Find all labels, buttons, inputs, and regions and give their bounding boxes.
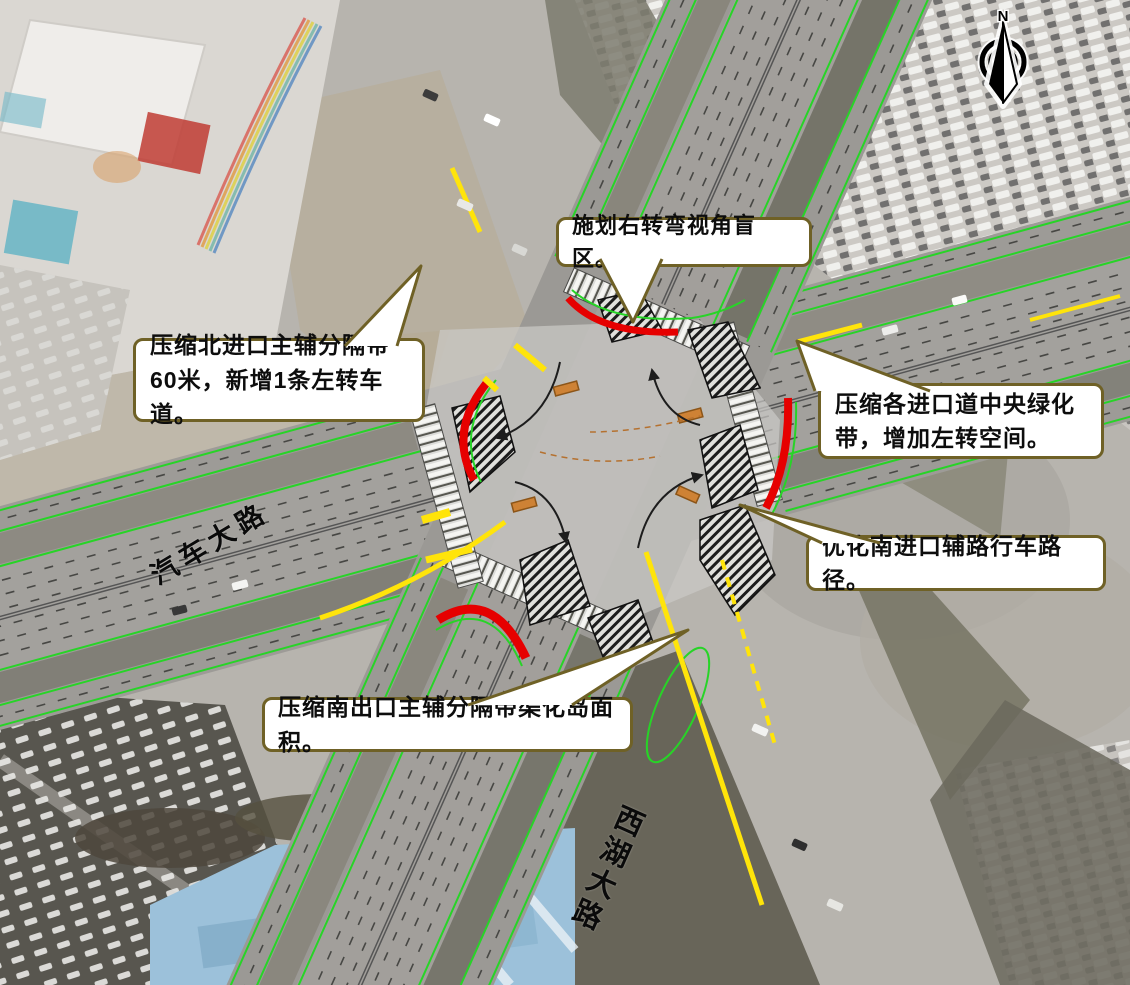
callout-blind-zone: 施划右转弯视角盲区。 <box>556 217 812 267</box>
callout-south-exit-island-text: 压缩南出口主辅分隔带渠化岛面积。 <box>278 690 617 759</box>
callout-south-exit-island: 压缩南出口主辅分隔带渠化岛面积。 <box>262 697 633 752</box>
callout-north-inlet-text: 压缩北进口主辅分隔带60米，新增1条左转车道。 <box>150 328 408 432</box>
callout-south-aux-path: 优化南进口辅路行车路径。 <box>806 535 1106 591</box>
annotated-intersection-map: N 汽车大路 西湖大路 施划右转弯视角盲区。 压缩北进口主辅分隔带60米，新增1… <box>0 0 1130 985</box>
compass-n-label: N <box>998 8 1009 25</box>
callout-north-inlet: 压缩北进口主辅分隔带60米，新增1条左转车道。 <box>133 338 425 422</box>
callout-blind-zone-text: 施划右转弯视角盲区。 <box>572 209 796 275</box>
callout-south-aux-path-text: 优化南进口辅路行车路径。 <box>822 529 1090 598</box>
aerial-map: N <box>0 0 1130 985</box>
callout-median-green-text: 压缩各进口道中央绿化带，增加左转空间。 <box>835 387 1087 456</box>
callout-median-green: 压缩各进口道中央绿化带，增加左转空间。 <box>818 383 1104 459</box>
